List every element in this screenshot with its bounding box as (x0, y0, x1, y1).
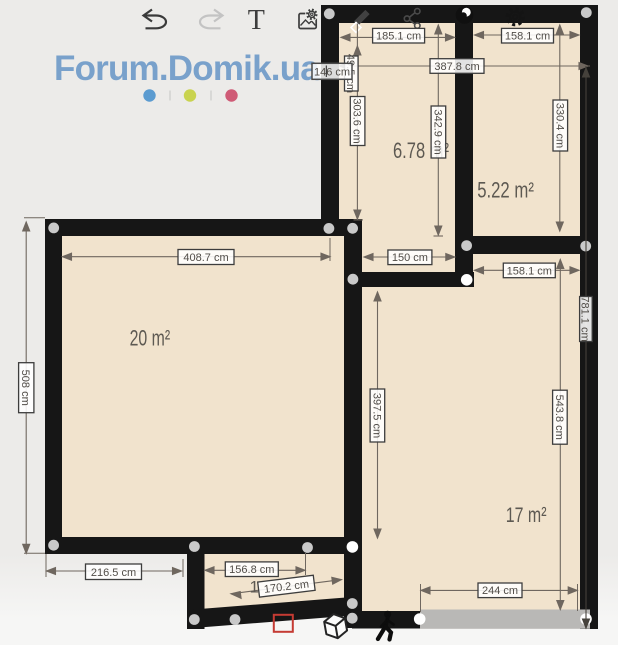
svg-text:342.9 cm: 342.9 cm (432, 109, 444, 154)
svg-text:303.6 cm: 303.6 cm (351, 98, 363, 143)
svg-text:5.22 m²: 5.22 m² (477, 177, 534, 202)
svg-text:156.8 cm: 156.8 cm (229, 564, 274, 576)
svg-text:T: T (248, 5, 265, 36)
svg-text:387.8 cm: 387.8 cm (434, 61, 479, 73)
svg-text:330.4 cm: 330.4 cm (553, 103, 565, 148)
svg-text:158.1 cm: 158.1 cm (505, 31, 550, 43)
svg-text:508 cm: 508 cm (19, 370, 31, 406)
svg-text:20 m²: 20 m² (130, 325, 171, 350)
svg-text:17 m²: 17 m² (506, 503, 547, 527)
svg-text:408.7 cm: 408.7 cm (183, 252, 228, 264)
svg-text:185.1 cm: 185.1 cm (376, 31, 421, 43)
svg-text:216.5 cm: 216.5 cm (91, 567, 136, 579)
svg-text:244 cm: 244 cm (482, 585, 518, 597)
svg-text:543.8 cm: 543.8 cm (553, 395, 565, 440)
svg-text:1: 1 (250, 578, 259, 597)
svg-text:781.1 cm: 781.1 cm (579, 296, 591, 341)
svg-text:397.5 cm: 397.5 cm (371, 393, 383, 438)
svg-text:150 cm: 150 cm (392, 252, 428, 264)
svg-text:158.1 cm: 158.1 cm (507, 265, 552, 277)
svg-text:146 cm: 146 cm (314, 66, 350, 78)
